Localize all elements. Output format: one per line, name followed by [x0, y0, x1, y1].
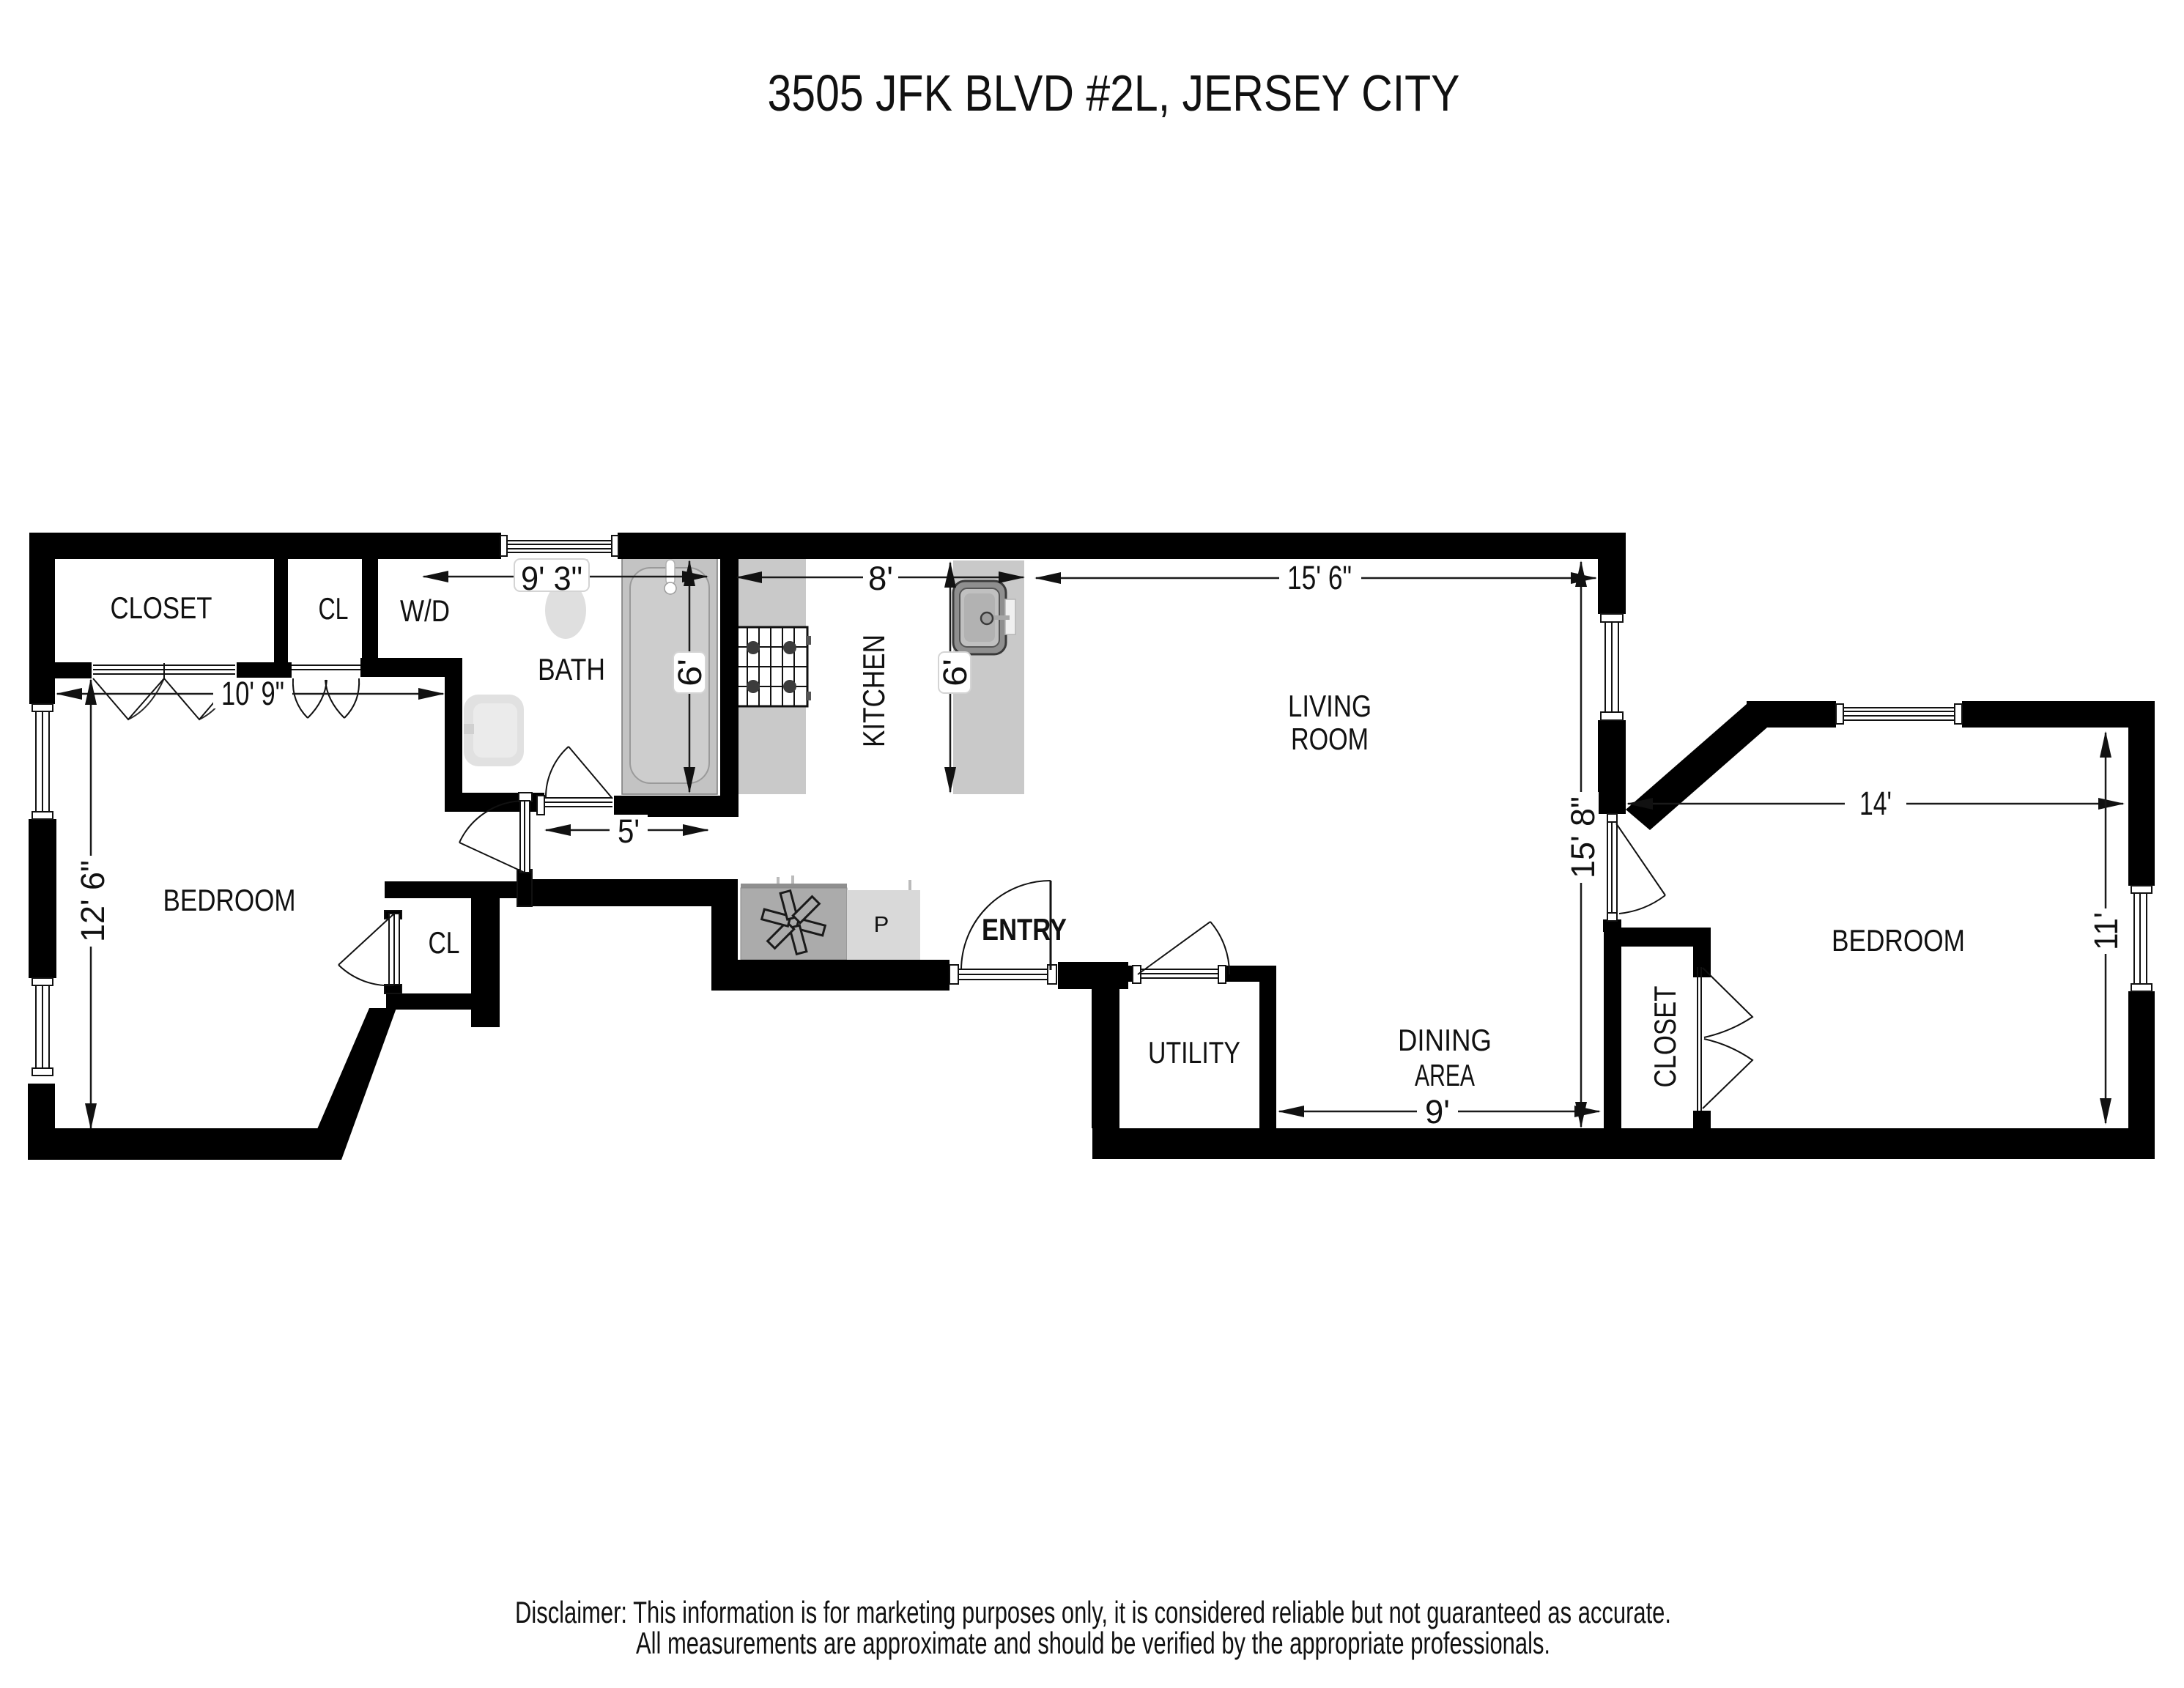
svg-text:All measurements are approxima: All measurements are approximate and sho…	[636, 1626, 1550, 1660]
svg-text:12' 6": 12' 6"	[74, 860, 111, 942]
svg-text:10' 9": 10' 9"	[221, 675, 284, 712]
svg-text:9' 3": 9' 3"	[521, 560, 582, 597]
svg-text:DINING: DINING	[1398, 1023, 1492, 1057]
svg-text:BEDROOM: BEDROOM	[1832, 923, 1965, 958]
svg-text:CLOSET: CLOSET	[111, 591, 212, 625]
svg-text:14': 14'	[1859, 785, 1892, 822]
svg-text:UTILITY: UTILITY	[1148, 1035, 1240, 1070]
svg-text:3505 JFK BLVD #2L, JERSEY CITY: 3505 JFK BLVD #2L, JERSEY CITY	[768, 64, 1460, 122]
svg-text:CL: CL	[429, 925, 460, 960]
svg-text:11': 11'	[2087, 912, 2125, 950]
svg-text:LIVING: LIVING	[1288, 689, 1372, 723]
svg-text:8': 8'	[868, 560, 893, 597]
svg-text:Disclaimer: This information i: Disclaimer: This information is for mark…	[515, 1595, 1671, 1629]
svg-text:ENTRY: ENTRY	[982, 912, 1067, 947]
svg-text:ROOM: ROOM	[1291, 722, 1369, 756]
svg-text:15' 8": 15' 8"	[1564, 796, 1602, 878]
svg-text:CLOSET: CLOSET	[1648, 986, 1682, 1088]
svg-text:KITCHEN: KITCHEN	[856, 634, 891, 747]
svg-text:6': 6'	[936, 659, 974, 686]
svg-text:BEDROOM: BEDROOM	[163, 883, 296, 917]
svg-text:P: P	[874, 911, 889, 937]
svg-text:AREA: AREA	[1415, 1058, 1475, 1092]
svg-text:BATH: BATH	[538, 652, 605, 686]
svg-text:15' 6": 15' 6"	[1287, 559, 1352, 596]
svg-text:9': 9'	[1425, 1093, 1450, 1130]
svg-text:CL: CL	[319, 591, 349, 626]
svg-text:W/D: W/D	[400, 593, 450, 628]
svg-text:5': 5'	[618, 812, 640, 850]
svg-text:6': 6'	[671, 659, 708, 686]
